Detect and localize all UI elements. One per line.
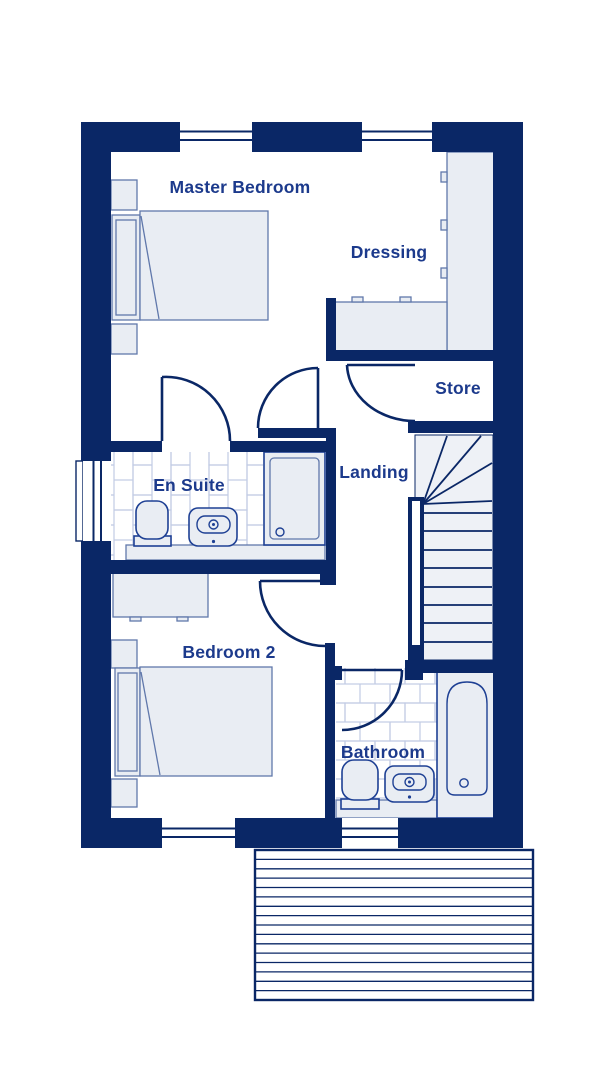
bedside-table-icon <box>111 779 137 807</box>
counter-icon <box>335 302 447 351</box>
wall-ensuite-top-right <box>230 441 336 452</box>
desk-icon <box>113 570 208 617</box>
room-label-landing: Landing <box>339 462 408 482</box>
wall-bathroom-landing-jamb <box>405 660 423 680</box>
window-dressing <box>362 122 432 152</box>
toilet-icon <box>136 501 168 539</box>
desk-bedroom2 <box>113 570 208 621</box>
bedside-table-icon <box>111 640 137 668</box>
room-label-master-bedroom: Master Bedroom <box>170 177 311 197</box>
counter-handle-icon <box>400 297 411 302</box>
vanity-ledge-icon <box>126 545 325 560</box>
window-ensuite <box>76 461 111 541</box>
pillow-icon <box>116 220 136 315</box>
wardrobe-handle-icon <box>441 268 447 278</box>
door-ensuite <box>162 377 230 441</box>
toilet-icon <box>342 760 378 800</box>
wall-exterior-right <box>493 122 523 848</box>
mattress-icon <box>140 211 268 320</box>
wall-ensuite-top-left <box>111 441 162 452</box>
bed-master <box>111 180 268 354</box>
desk-foot-icon <box>177 617 188 621</box>
staircase <box>408 435 493 662</box>
counter-dressing <box>335 297 447 351</box>
room-label-store: Store <box>435 378 481 398</box>
wall-dressing-store <box>333 350 494 361</box>
room-label-en-suite: En Suite <box>153 475 225 495</box>
wardrobe-handle-icon <box>441 172 447 182</box>
bedside-table-icon <box>111 324 137 354</box>
wardrobe-dressing <box>441 152 494 352</box>
wall-store-stairs <box>408 421 494 433</box>
basin-drain-dot <box>408 795 411 798</box>
basin-drain-dot <box>212 540 215 543</box>
door-master-bedroom <box>258 368 318 428</box>
wall-exterior-bottom <box>81 818 523 848</box>
wall-ensuite-bedroom2 <box>111 560 325 574</box>
door-store <box>347 365 415 421</box>
room-label-dressing: Dressing <box>351 242 428 262</box>
wardrobe-handle-icon <box>441 220 447 230</box>
wall-master-door-head <box>258 428 336 438</box>
door-bedroom2 <box>260 581 325 646</box>
room-label-bedroom-2: Bedroom 2 <box>182 642 275 662</box>
window-master-bedroom <box>180 122 252 152</box>
canopy-roof <box>255 850 533 1000</box>
shower-tray-icon <box>270 458 319 539</box>
window-bathroom <box>342 818 398 848</box>
stair-banister-inner <box>412 501 420 645</box>
wardrobe-icon <box>447 152 494 352</box>
room-label-bathroom: Bathroom <box>341 742 425 762</box>
basin-tap-dot <box>212 523 215 526</box>
mattress-icon <box>140 667 272 776</box>
window-bedroom2 <box>162 818 235 848</box>
wall-bathroom-door-jamb <box>333 666 342 680</box>
desk-foot-icon <box>130 617 141 621</box>
floor-plan: Master Bedroom Dressing Store Landing En… <box>0 0 600 1080</box>
wall-exterior-top <box>81 122 523 152</box>
counter-handle-icon <box>352 297 363 302</box>
bedside-table-icon <box>111 180 137 210</box>
pillow-icon <box>118 673 137 771</box>
bed-bedroom2 <box>111 640 272 807</box>
basin-tap-dot <box>408 781 411 784</box>
